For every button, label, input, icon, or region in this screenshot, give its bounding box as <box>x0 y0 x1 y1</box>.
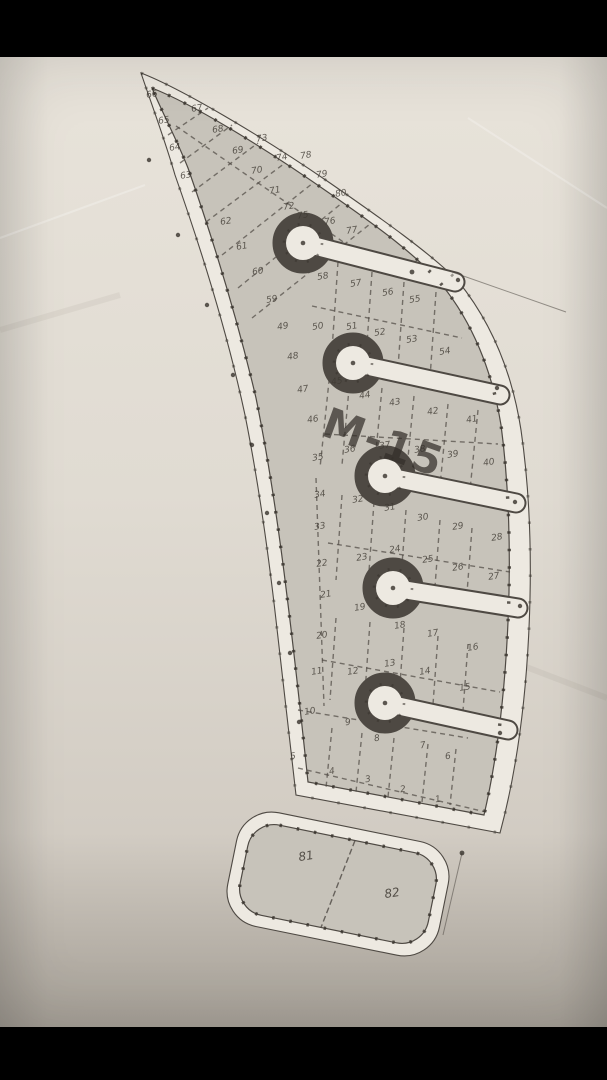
letterbox-bottom <box>0 1027 607 1080</box>
site-plan-drawing <box>0 0 607 1080</box>
phone-photo-view: { "map": { "plan_label": "M-15", "colors… <box>0 0 607 1080</box>
